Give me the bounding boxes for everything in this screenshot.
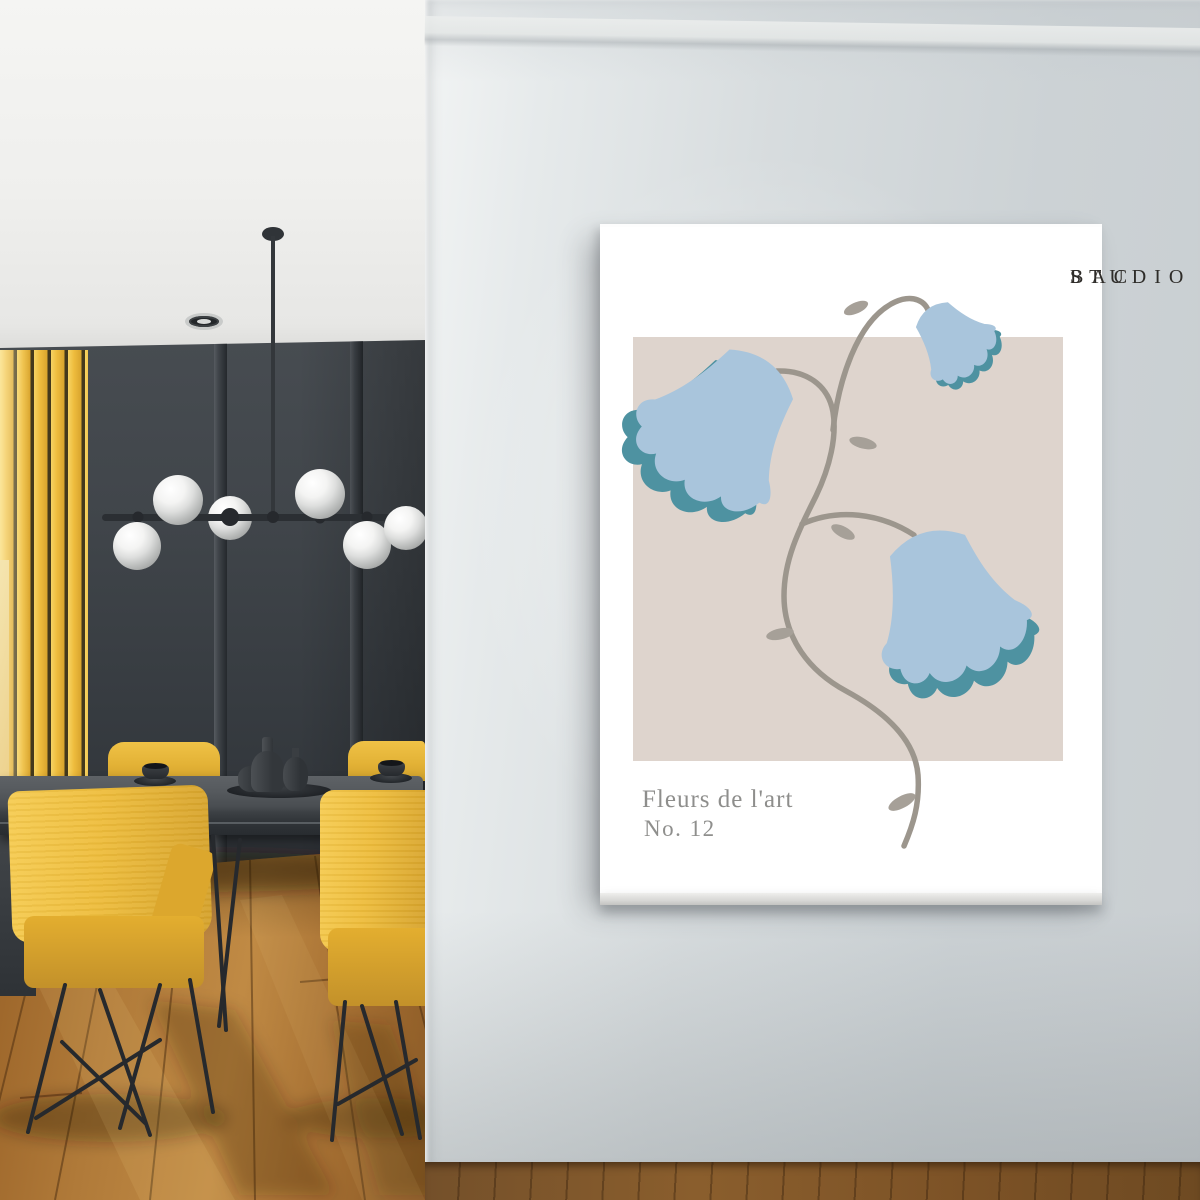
canvas-bottom-edge (600, 893, 1102, 905)
spotlight-lens (197, 319, 211, 324)
chair-front-left (10, 788, 212, 1023)
chair-seat (328, 928, 426, 1006)
scene-photo: STUDIO BAC Fleurs de l'art No. 12 (0, 0, 1200, 1200)
chair-seat (24, 916, 204, 988)
brand-line2: BAC (1070, 268, 1135, 286)
recessed-spotlight (185, 313, 223, 330)
espresso-cup (142, 765, 169, 779)
espresso-cup (378, 762, 405, 776)
poster-edition: No. 12 (644, 816, 716, 842)
yellow-slat-panel (0, 350, 88, 782)
chair-front-right (320, 790, 426, 1040)
ceiling (0, 0, 432, 352)
curtain-edge (0, 560, 9, 782)
bottle-vase (283, 757, 308, 791)
wood-floor-right (425, 1162, 1200, 1200)
tall-vase (251, 751, 284, 792)
poster-title: Fleurs de l'art (642, 786, 793, 814)
canvas-print[interactable]: STUDIO BAC Fleurs de l'art No. 12 (600, 224, 1102, 893)
